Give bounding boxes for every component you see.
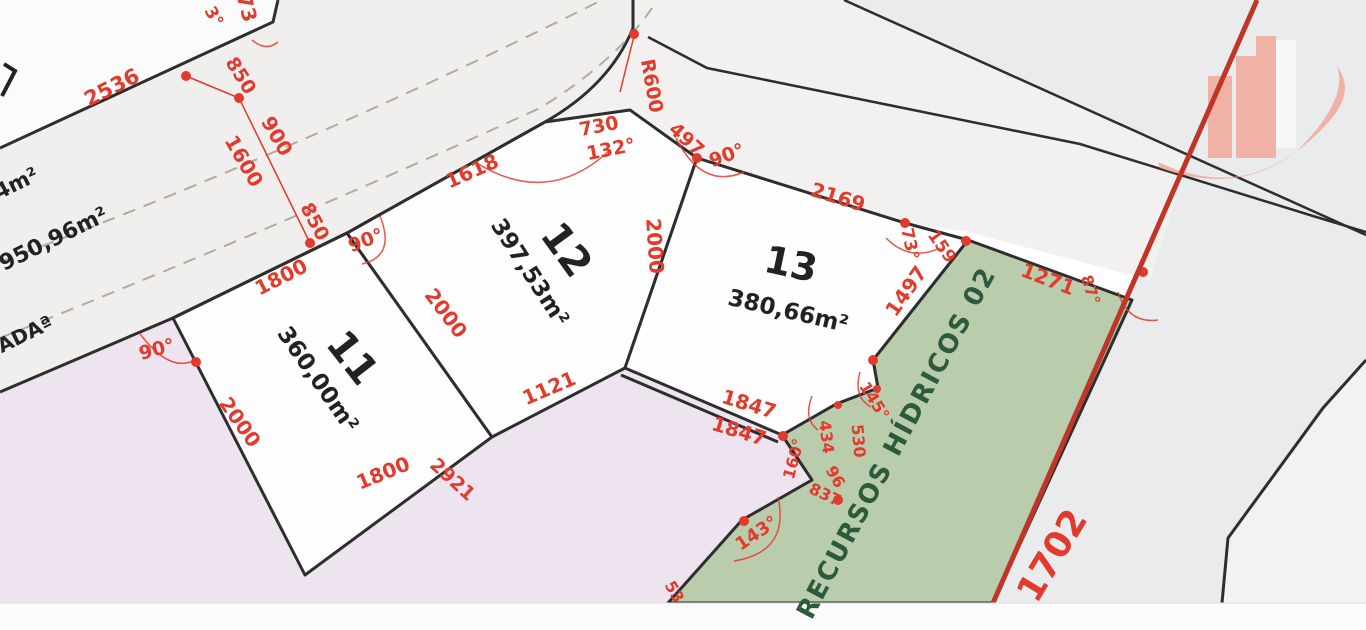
bottom-white-band: [0, 603, 1366, 630]
site-plan-map: 11360,00m²12397,53m²13380,66m²ADAª44m²95…: [0, 0, 1366, 630]
plan-geometry: [0, 0, 1366, 630]
